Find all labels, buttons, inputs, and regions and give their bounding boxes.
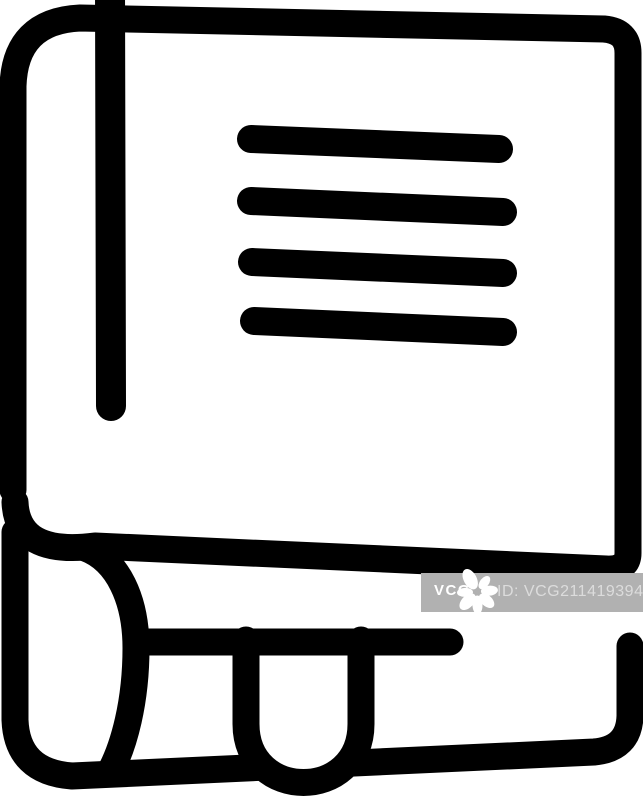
book-icon <box>0 0 643 800</box>
vcg-flower-icon <box>454 561 500 623</box>
text-line-1 <box>251 139 499 149</box>
stock-image-preview: VCG ID: VCG211419394340 <box>0 0 643 800</box>
roll-inner-curve <box>85 548 136 772</box>
bookmark-u <box>246 640 361 783</box>
watermark-id-text: ID: VCG211419394340 <box>497 584 643 600</box>
text-line-4 <box>254 321 503 332</box>
spine-line <box>110 0 111 406</box>
watermark-bar: VCG ID: VCG211419394340 <box>421 573 643 612</box>
text-line-2 <box>251 201 503 212</box>
text-line-3 <box>252 262 503 273</box>
